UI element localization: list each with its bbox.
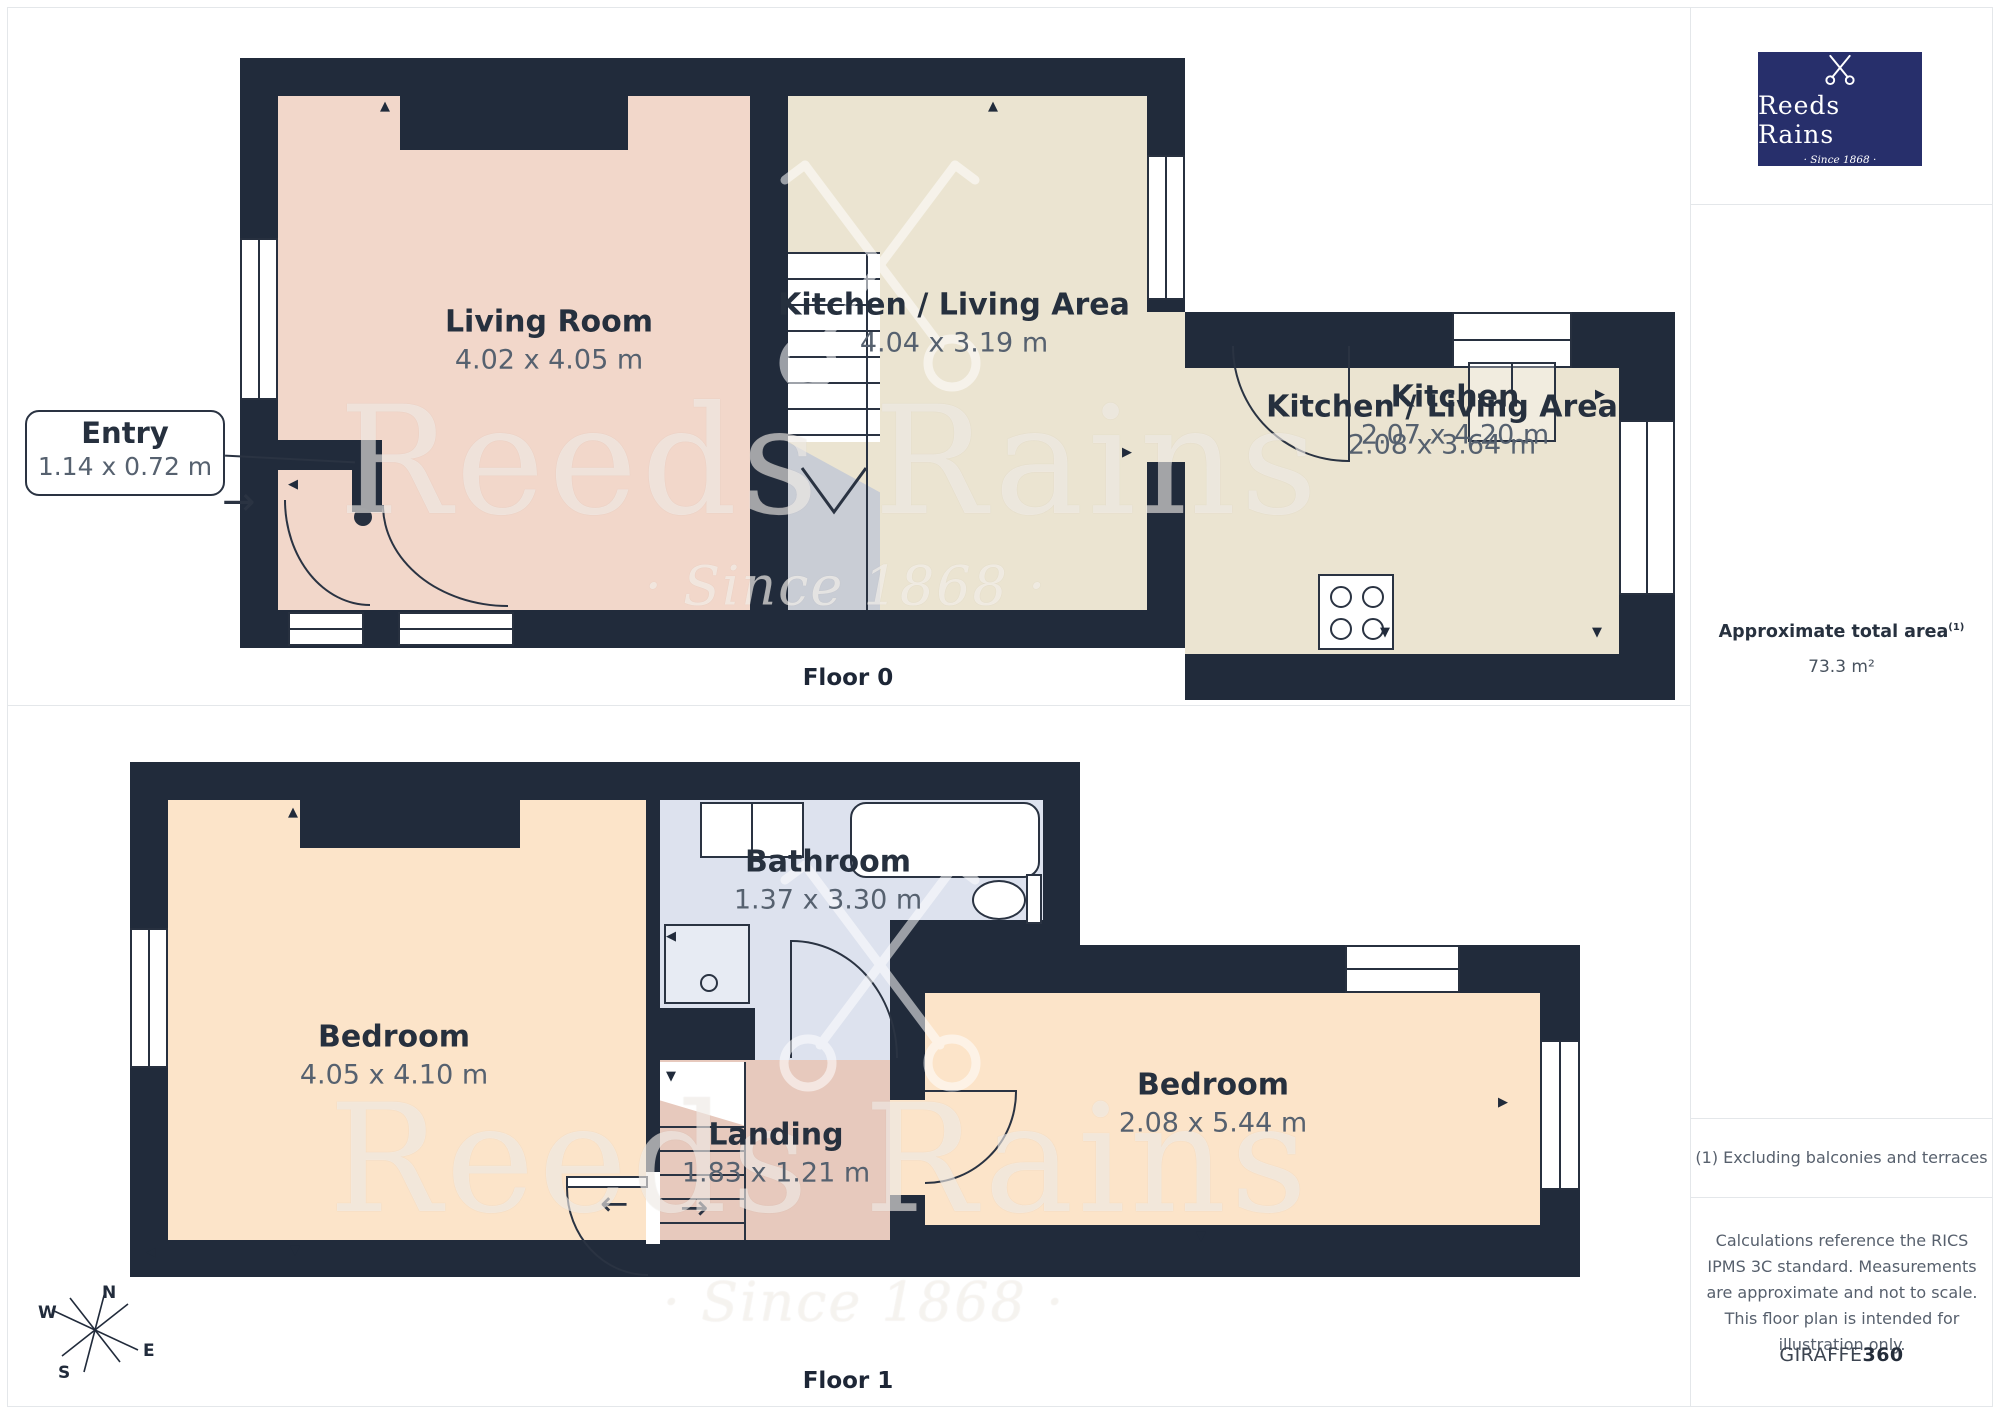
room-name: Bathroom bbox=[734, 846, 922, 881]
window bbox=[1452, 312, 1572, 368]
chimney-breast bbox=[400, 96, 628, 150]
dimension-marker-icon: ▼ bbox=[1380, 626, 1390, 639]
dimension-marker-icon: ▼ bbox=[1592, 626, 1602, 639]
compass-icon bbox=[28, 1270, 168, 1395]
window bbox=[1540, 1040, 1580, 1190]
floor0-label: Floor 0 bbox=[803, 665, 894, 691]
entry-arrow-icon: → bbox=[222, 482, 256, 522]
compass-south-label: S bbox=[58, 1363, 70, 1383]
total-area-value: 73.3 m² bbox=[1690, 657, 1993, 677]
floor1-label: Floor 1 bbox=[803, 1368, 894, 1394]
giraffe360-brand: GIRAFFE360 bbox=[1690, 1344, 1993, 1366]
room-name: Kitchen / Living Area bbox=[778, 289, 1130, 324]
dimension-marker-icon: ◀ bbox=[288, 478, 298, 491]
dimension-marker-icon: ▲ bbox=[288, 806, 298, 819]
window bbox=[1147, 155, 1185, 300]
logo-tagline: · Since 1868 · bbox=[1804, 154, 1877, 166]
shower-drain-icon bbox=[700, 974, 718, 992]
hob-burner-icon bbox=[1330, 586, 1352, 608]
room-dimensions: 1.37 x 3.30 m bbox=[734, 884, 922, 916]
dimension-marker-icon: ▲ bbox=[380, 100, 390, 113]
dimension-marker-icon: ◀ bbox=[146, 1246, 156, 1259]
dimension-marker-icon: ▼ bbox=[290, 1244, 300, 1257]
brand-name: GIRAFFE bbox=[1779, 1344, 1862, 1366]
room-label-kitchen-living-area-2: Kitchen / Living Area 2.08 x 3.64 m bbox=[1266, 391, 1618, 462]
room-dimensions: 4.02 x 4.05 m bbox=[445, 344, 653, 376]
brand-suffix: 360 bbox=[1862, 1344, 1903, 1366]
room-dimensions: 4.05 x 4.10 m bbox=[300, 1059, 488, 1091]
room-name: Bedroom bbox=[300, 1021, 488, 1056]
room-label-bedroom-right: Bedroom 2.08 x 5.44 m bbox=[1119, 1069, 1307, 1140]
room-label-kitchen-living-area: Kitchen / Living Area 4.04 x 3.19 m bbox=[778, 289, 1130, 360]
logo-keys-icon bbox=[1818, 52, 1862, 87]
entry-door-threshold bbox=[288, 612, 364, 646]
compass-north-label: N bbox=[102, 1283, 116, 1303]
sidebar-divider bbox=[1690, 1197, 1993, 1198]
room-dimensions: 4.04 x 3.19 m bbox=[778, 327, 1130, 359]
disclaimer-text: Calculations reference the RICS IPMS 3C … bbox=[1706, 1228, 1978, 1358]
window bbox=[1345, 945, 1460, 993]
total-area-heading-text: Approximate total area bbox=[1719, 622, 1949, 642]
floor1-panel: ← → ▲ ◀ ▼ ◀ ▼ ▶ ▼ Reeds Rains · Since 18… bbox=[0, 705, 1690, 1414]
room-dimensions: 1.14 x 0.72 m bbox=[27, 452, 223, 482]
chimney-breast bbox=[300, 800, 520, 848]
room-dimensions: 1.83 x 1.21 m bbox=[682, 1157, 870, 1189]
room-name: Entry bbox=[27, 417, 223, 450]
room-name: Living Room bbox=[445, 306, 653, 341]
entry-door-threshold bbox=[398, 612, 514, 646]
total-area-heading: Approximate total area(1) bbox=[1690, 622, 1993, 642]
dimension-marker-icon: ▶ bbox=[1498, 1096, 1508, 1109]
floorplan-page: ▲ ▲ ◀ ▶ ▶ ▼ ▼ Reeds Rains · Since 1868 ·… bbox=[0, 0, 2000, 1414]
window bbox=[240, 238, 278, 400]
watermark-title: Reeds Rains bbox=[339, 375, 1322, 549]
window bbox=[1619, 420, 1675, 595]
compass-east-label: E bbox=[143, 1341, 155, 1361]
room-label-bathroom: Bathroom 1.37 x 3.30 m bbox=[734, 846, 922, 917]
total-area-block: Approximate total area(1) 73.3 m² bbox=[1690, 622, 1993, 677]
entry-callout: Entry 1.14 x 0.72 m bbox=[25, 410, 225, 496]
watermark-tagline: · Since 1868 · bbox=[663, 1271, 1066, 1334]
sidebar-divider bbox=[1690, 204, 1993, 205]
compass-west-label: W bbox=[38, 1303, 57, 1323]
hob-burner-icon bbox=[1362, 586, 1384, 608]
watermark-tagline: · Since 1868 · bbox=[645, 555, 1048, 618]
footnote-marker: (1) bbox=[1948, 622, 1964, 633]
hob-burner-icon bbox=[1330, 618, 1352, 640]
room-name: Landing bbox=[682, 1119, 870, 1154]
reeds-rains-logo: Reeds Rains · Since 1868 · bbox=[1758, 52, 1922, 166]
room-label-living-room: Living Room 4.02 x 4.05 m bbox=[445, 306, 653, 377]
panel-divider-horizontal bbox=[7, 705, 1690, 706]
sidebar-divider bbox=[1690, 1118, 1993, 1119]
dimension-marker-icon: ◀ bbox=[666, 930, 676, 943]
area-footnote: (1) Excluding balconies and terraces bbox=[1690, 1148, 1993, 1167]
room-dimensions: 2.08 x 5.44 m bbox=[1119, 1107, 1307, 1139]
dimension-marker-icon: ▲ bbox=[988, 100, 998, 113]
room-label-bedroom-left: Bedroom 4.05 x 4.10 m bbox=[300, 1021, 488, 1092]
logo-title: Reeds Rains bbox=[1758, 91, 1922, 149]
floor0-panel: ▲ ▲ ◀ ▶ ▶ ▼ ▼ Reeds Rains · Since 1868 ·… bbox=[0, 0, 1690, 705]
room-name: Kitchen / Living Area bbox=[1266, 391, 1618, 426]
room-label-landing: Landing 1.83 x 1.21 m bbox=[682, 1119, 870, 1190]
window bbox=[130, 928, 168, 1068]
room-dimensions: 2.08 x 3.64 m bbox=[1266, 429, 1618, 461]
room-name: Bedroom bbox=[1119, 1069, 1307, 1104]
